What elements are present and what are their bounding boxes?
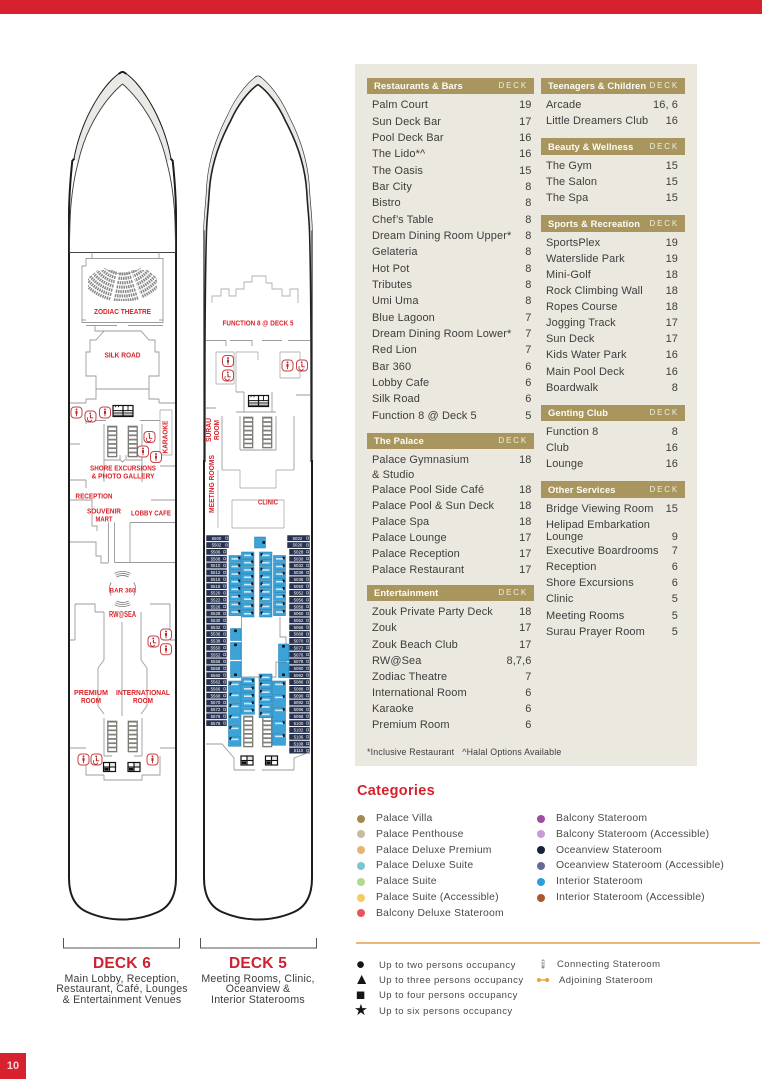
svg-text:5070: 5070	[294, 639, 304, 644]
svg-text:5028: 5028	[294, 550, 304, 555]
svg-text:5036: 5036	[294, 570, 304, 575]
svg-text:SHORE EXCURSIONS: SHORE EXCURSIONS	[90, 466, 156, 473]
svg-text:5570: 5570	[211, 700, 221, 705]
svg-text:5090: 5090	[294, 693, 304, 698]
svg-text:BAR 360: BAR 360	[110, 588, 136, 595]
svg-text:5536: 5536	[211, 632, 221, 637]
svg-text:5092: 5092	[294, 700, 304, 705]
svg-text:5572: 5572	[211, 707, 221, 712]
svg-text:5562: 5562	[211, 680, 221, 685]
svg-text:SILK ROAD: SILK ROAD	[105, 351, 142, 360]
svg-text:5098: 5098	[294, 714, 304, 719]
svg-text:5056: 5056	[294, 598, 304, 603]
svg-text:5502: 5502	[212, 543, 222, 548]
svg-text:5560: 5560	[211, 673, 221, 678]
svg-text:5068: 5068	[294, 632, 304, 637]
svg-text:5108: 5108	[294, 741, 304, 746]
svg-text:5530: 5530	[211, 618, 221, 623]
svg-text:5552: 5552	[211, 652, 221, 657]
svg-text:5510: 5510	[211, 563, 221, 568]
svg-text:CLINIC: CLINIC	[258, 498, 278, 507]
svg-text:5532: 5532	[211, 625, 221, 630]
svg-text:5060: 5060	[294, 611, 304, 616]
svg-text:5086: 5086	[294, 680, 304, 685]
svg-text:5052: 5052	[294, 591, 304, 596]
svg-text:5088: 5088	[294, 687, 304, 692]
svg-text:5508: 5508	[211, 556, 221, 561]
svg-text:5058: 5058	[294, 604, 304, 609]
svg-text:5550: 5550	[211, 645, 221, 650]
svg-text:KARAOKE: KARAOKE	[161, 420, 170, 453]
svg-text:5110: 5110	[294, 748, 304, 753]
svg-text:5558: 5558	[211, 666, 221, 671]
svg-text:ZODIAC THEATRE: ZODIAC THEATRE	[94, 307, 151, 316]
svg-text:5066: 5066	[294, 625, 304, 630]
svg-text:ROOM: ROOM	[133, 696, 153, 705]
svg-text:5026: 5026	[293, 543, 303, 548]
svg-text:5526: 5526	[211, 604, 221, 609]
svg-text:5556: 5556	[211, 659, 221, 664]
svg-text:ROOM: ROOM	[212, 420, 221, 440]
svg-text:5102: 5102	[294, 728, 304, 733]
svg-text:5050: 5050	[294, 584, 304, 589]
svg-text:FUNCTION 8 @ DECK 5: FUNCTION 8 @ DECK 5	[223, 319, 294, 328]
svg-text:RECEPTION: RECEPTION	[76, 492, 113, 501]
svg-text:5520: 5520	[211, 591, 221, 596]
svg-text:5022: 5022	[293, 536, 303, 541]
svg-text:5072: 5072	[294, 645, 304, 650]
svg-text:5062: 5062	[294, 618, 304, 623]
svg-text:5082: 5082	[294, 673, 304, 678]
svg-text:5096: 5096	[294, 707, 304, 712]
svg-text:5506: 5506	[211, 550, 221, 555]
svg-text:5576: 5576	[211, 714, 221, 719]
svg-text:5106: 5106	[294, 735, 304, 740]
svg-text:5518: 5518	[211, 584, 221, 589]
svg-text:5522: 5522	[211, 598, 221, 603]
svg-text:5032: 5032	[294, 563, 304, 568]
svg-text:5076: 5076	[294, 652, 304, 657]
svg-text:5500: 5500	[212, 536, 222, 541]
svg-text:5516: 5516	[211, 577, 221, 582]
svg-text:& PHOTO GALLERY: & PHOTO GALLERY	[92, 474, 155, 481]
svg-text:5568: 5568	[211, 693, 221, 698]
svg-text:LOBBY CAFE: LOBBY CAFE	[131, 509, 171, 518]
svg-text:RW@SEA: RW@SEA	[109, 610, 136, 619]
svg-text:5512: 5512	[211, 570, 221, 575]
svg-text:5080: 5080	[294, 666, 304, 671]
svg-text:5578: 5578	[211, 721, 221, 726]
svg-text:5038: 5038	[294, 577, 304, 582]
svg-text:5538: 5538	[211, 639, 221, 644]
svg-text:5566: 5566	[211, 687, 221, 692]
svg-text:MEETING ROOMS: MEETING ROOMS	[207, 455, 216, 513]
svg-text:5078: 5078	[294, 659, 304, 664]
svg-text:5528: 5528	[211, 611, 221, 616]
svg-text:MART: MART	[96, 515, 113, 524]
svg-text:ROOM: ROOM	[81, 696, 101, 705]
svg-text:5100: 5100	[294, 721, 304, 726]
svg-text:5030: 5030	[294, 556, 304, 561]
